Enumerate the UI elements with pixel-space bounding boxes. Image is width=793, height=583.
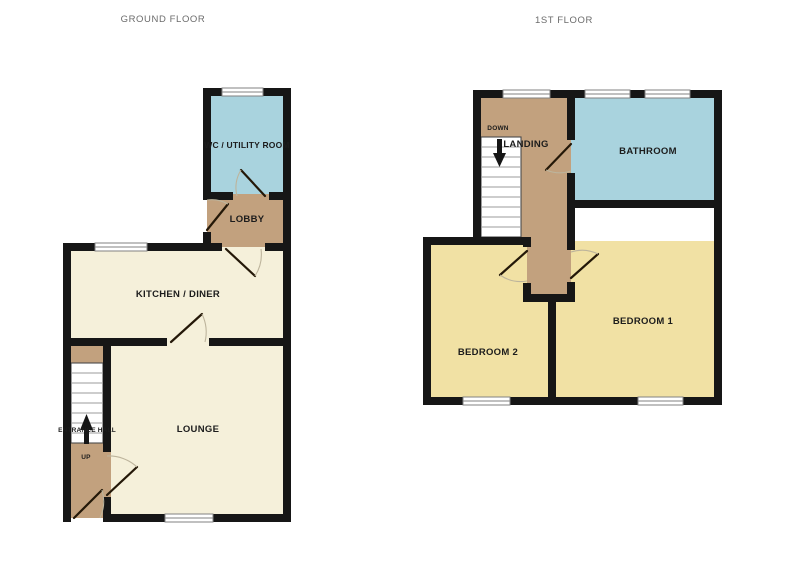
wall-segment xyxy=(269,192,291,200)
wall-segment xyxy=(523,237,531,247)
floor-titles: GROUND FLOOR 1ST FLOOR xyxy=(121,14,593,26)
wall-segment xyxy=(213,514,291,522)
wall-segment xyxy=(630,90,645,98)
wall-segment xyxy=(510,397,638,405)
window-landing xyxy=(503,90,550,98)
stairs-direction-label-down: DOWN xyxy=(487,125,508,132)
room-label-kitchen-diner: KITCHEN / DINER xyxy=(136,289,220,300)
ground-floor-title: GROUND FLOOR xyxy=(121,14,206,25)
wall-segment xyxy=(209,338,291,346)
floor-plan-drawing: WC / UTILITY ROOM LOBBY KITCHEN / DINER … xyxy=(0,0,793,583)
room-label-wc-utility: WC / UTILITY ROOM xyxy=(204,140,289,150)
wall-segment xyxy=(567,200,722,208)
stairs-direction-label-up: UP xyxy=(81,454,91,461)
room-label-bathroom: BATHROOM xyxy=(619,146,677,157)
wall-segment xyxy=(548,294,556,405)
window-bathroom-left xyxy=(585,90,630,98)
arrow-shaft xyxy=(497,139,502,154)
wall-segment xyxy=(714,90,722,405)
room-label-bedroom-2: BEDROOM 2 xyxy=(458,347,518,358)
window-bedroom-2 xyxy=(463,397,510,405)
first-floor-title: 1ST FLOOR xyxy=(535,15,593,26)
window-bathroom-right xyxy=(645,90,690,98)
wall-segment xyxy=(423,397,463,405)
rooms-bedrooms-floor xyxy=(427,241,718,401)
wall-segment xyxy=(683,397,722,405)
window-lounge xyxy=(165,514,213,522)
room-label-entrance-hall: ENTRANCE HALL xyxy=(58,427,116,434)
room-label-landing: LANDING xyxy=(503,139,548,150)
room-label-lobby: LOBBY xyxy=(230,214,265,225)
wall-segment xyxy=(63,338,167,346)
wall-segment xyxy=(423,237,531,245)
wall-segment xyxy=(423,237,431,405)
first-floor-plan: DOWN LANDING BATHROOM BEDROOM 1 BEDROOM … xyxy=(423,90,722,405)
ground-floor-plan: WC / UTILITY ROOM LOBBY KITCHEN / DINER … xyxy=(58,88,291,522)
wall-segment xyxy=(567,90,575,140)
room-label-bedroom-1: BEDROOM 1 xyxy=(613,316,674,327)
window-kitchen xyxy=(95,243,147,251)
wall-segment xyxy=(203,192,233,200)
wall-segment xyxy=(473,90,481,245)
floor-plan-page: WC / UTILITY ROOM LOBBY KITCHEN / DINER … xyxy=(0,0,793,583)
wall-segment xyxy=(103,514,165,522)
wall-segment xyxy=(283,88,291,522)
wall-segment xyxy=(147,243,222,251)
window-bedroom-1 xyxy=(638,397,683,405)
wall-segment xyxy=(63,243,71,522)
window-wc-utility xyxy=(222,88,263,96)
room-label-lounge: LOUNGE xyxy=(177,424,219,435)
wall-segment xyxy=(63,514,71,522)
wall-segment xyxy=(265,243,291,251)
wall-segment xyxy=(103,346,111,452)
wall-segment xyxy=(567,173,575,250)
